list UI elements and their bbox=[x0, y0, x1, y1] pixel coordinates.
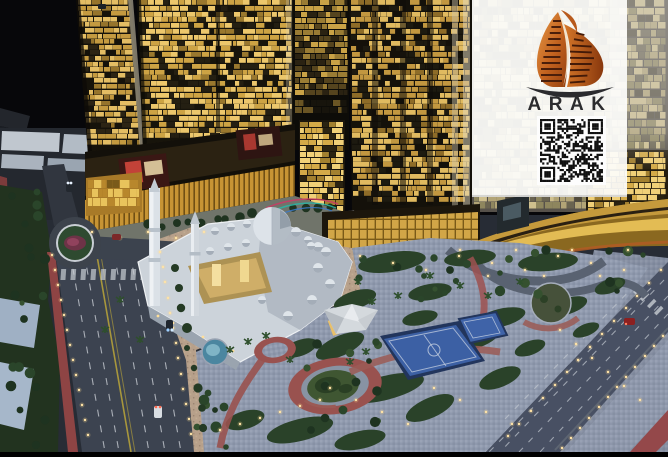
svg-text:ARAK: ARAK bbox=[528, 94, 613, 115]
